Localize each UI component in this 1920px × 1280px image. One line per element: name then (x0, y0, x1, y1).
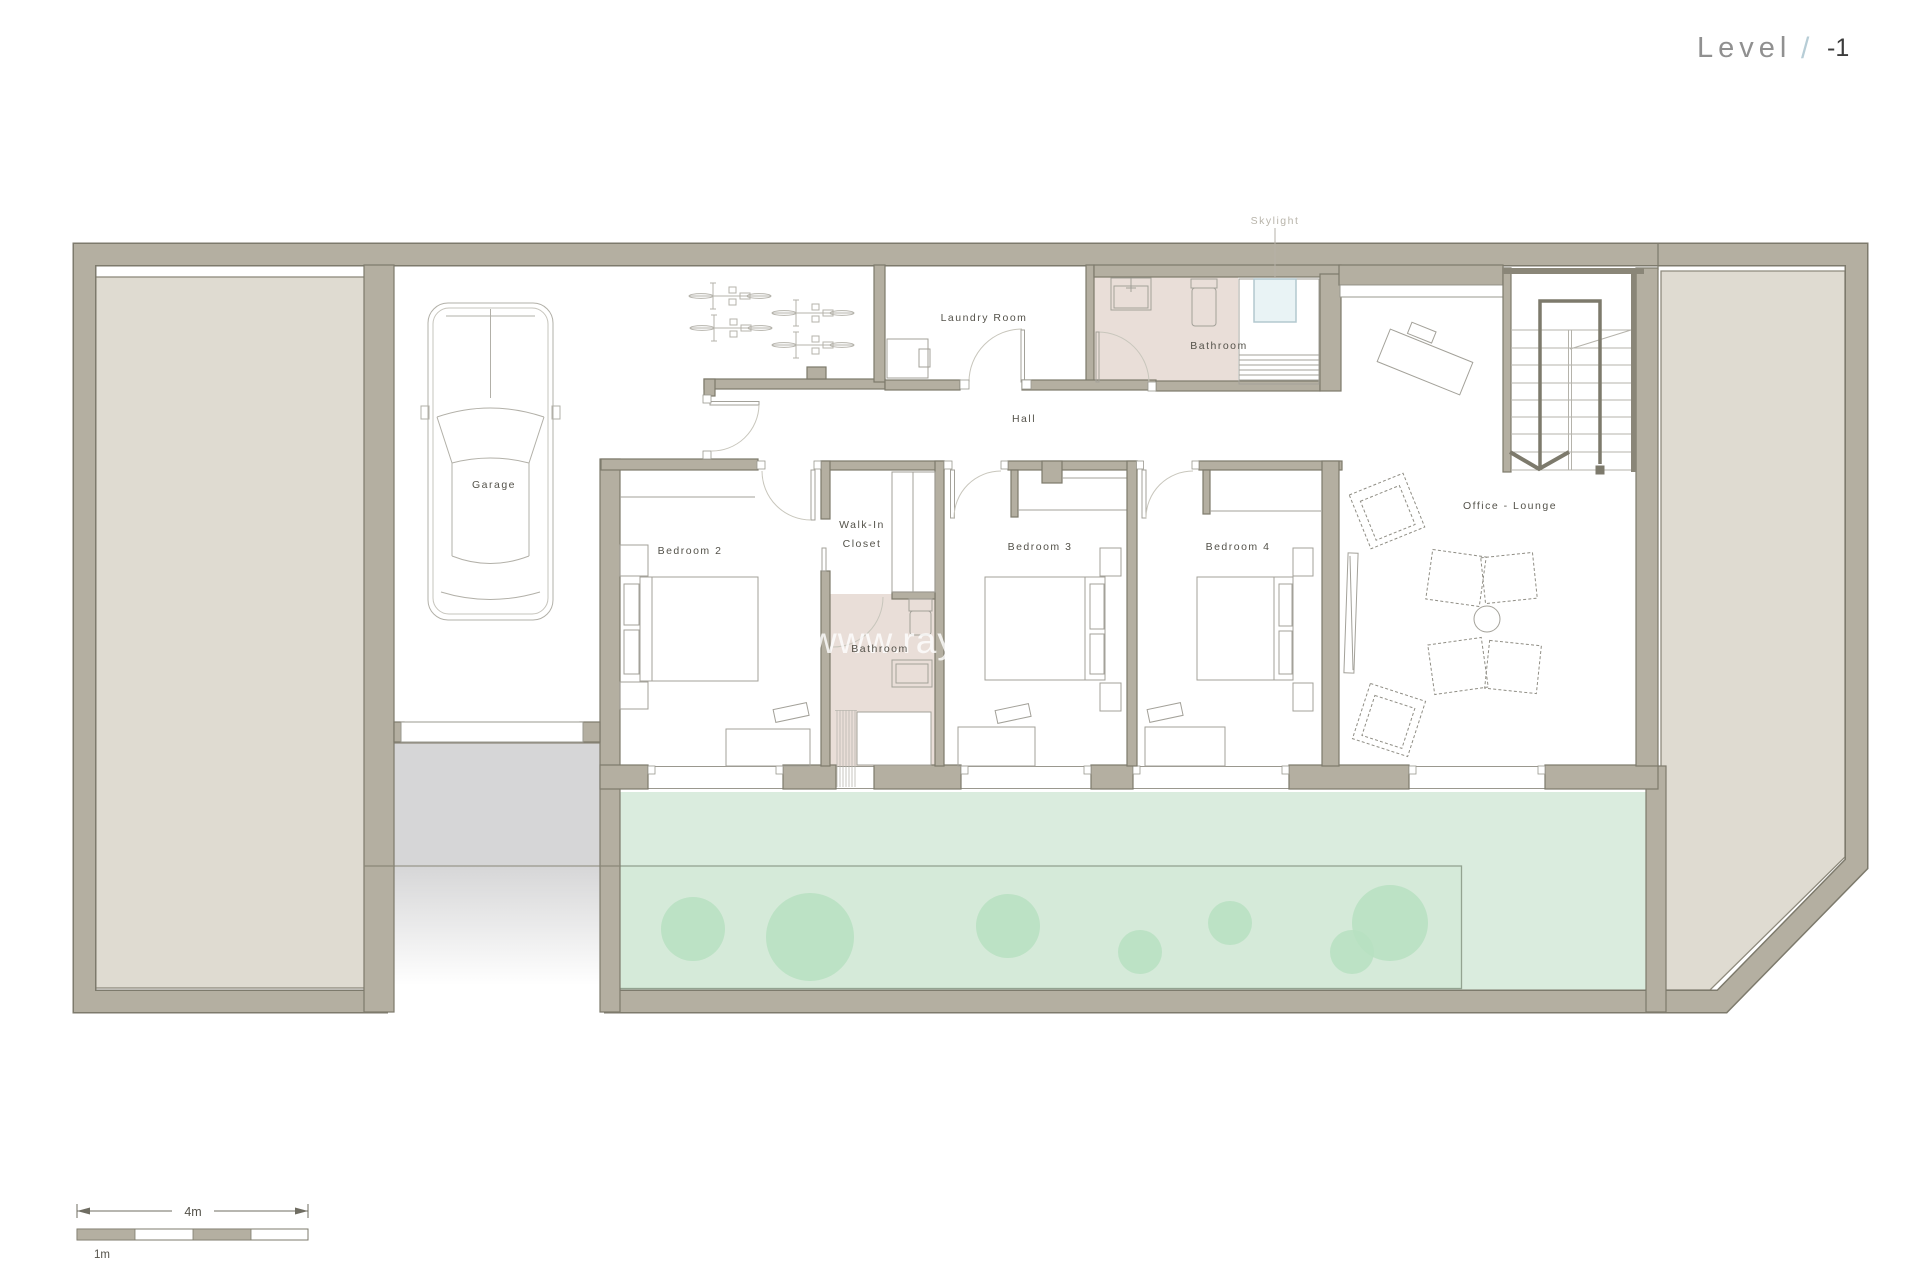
svg-text:Office - Lounge: Office - Lounge (1463, 500, 1557, 512)
svg-text:Bathroom: Bathroom (851, 643, 909, 655)
svg-text:4m: 4m (184, 1205, 201, 1219)
svg-text:Garage: Garage (472, 479, 516, 491)
svg-text:Walk-In: Walk-In (839, 519, 885, 531)
svg-text:1m: 1m (94, 1249, 110, 1261)
svg-text:Hall: Hall (1012, 413, 1036, 425)
svg-text:Bedroom 3: Bedroom 3 (1008, 541, 1073, 553)
svg-text:Bedroom 2: Bedroom 2 (658, 545, 723, 557)
svg-text:Skylight: Skylight (1251, 215, 1300, 227)
svg-text:Level: Level (1697, 32, 1791, 64)
svg-text:Laundry Room: Laundry Room (941, 312, 1028, 324)
svg-text:/: / (1801, 32, 1810, 65)
svg-text:-1: -1 (1827, 34, 1849, 62)
svg-text:Bathroom: Bathroom (1190, 340, 1248, 352)
svg-text:Bedroom 4: Bedroom 4 (1206, 541, 1271, 553)
svg-text:Closet: Closet (843, 538, 882, 550)
